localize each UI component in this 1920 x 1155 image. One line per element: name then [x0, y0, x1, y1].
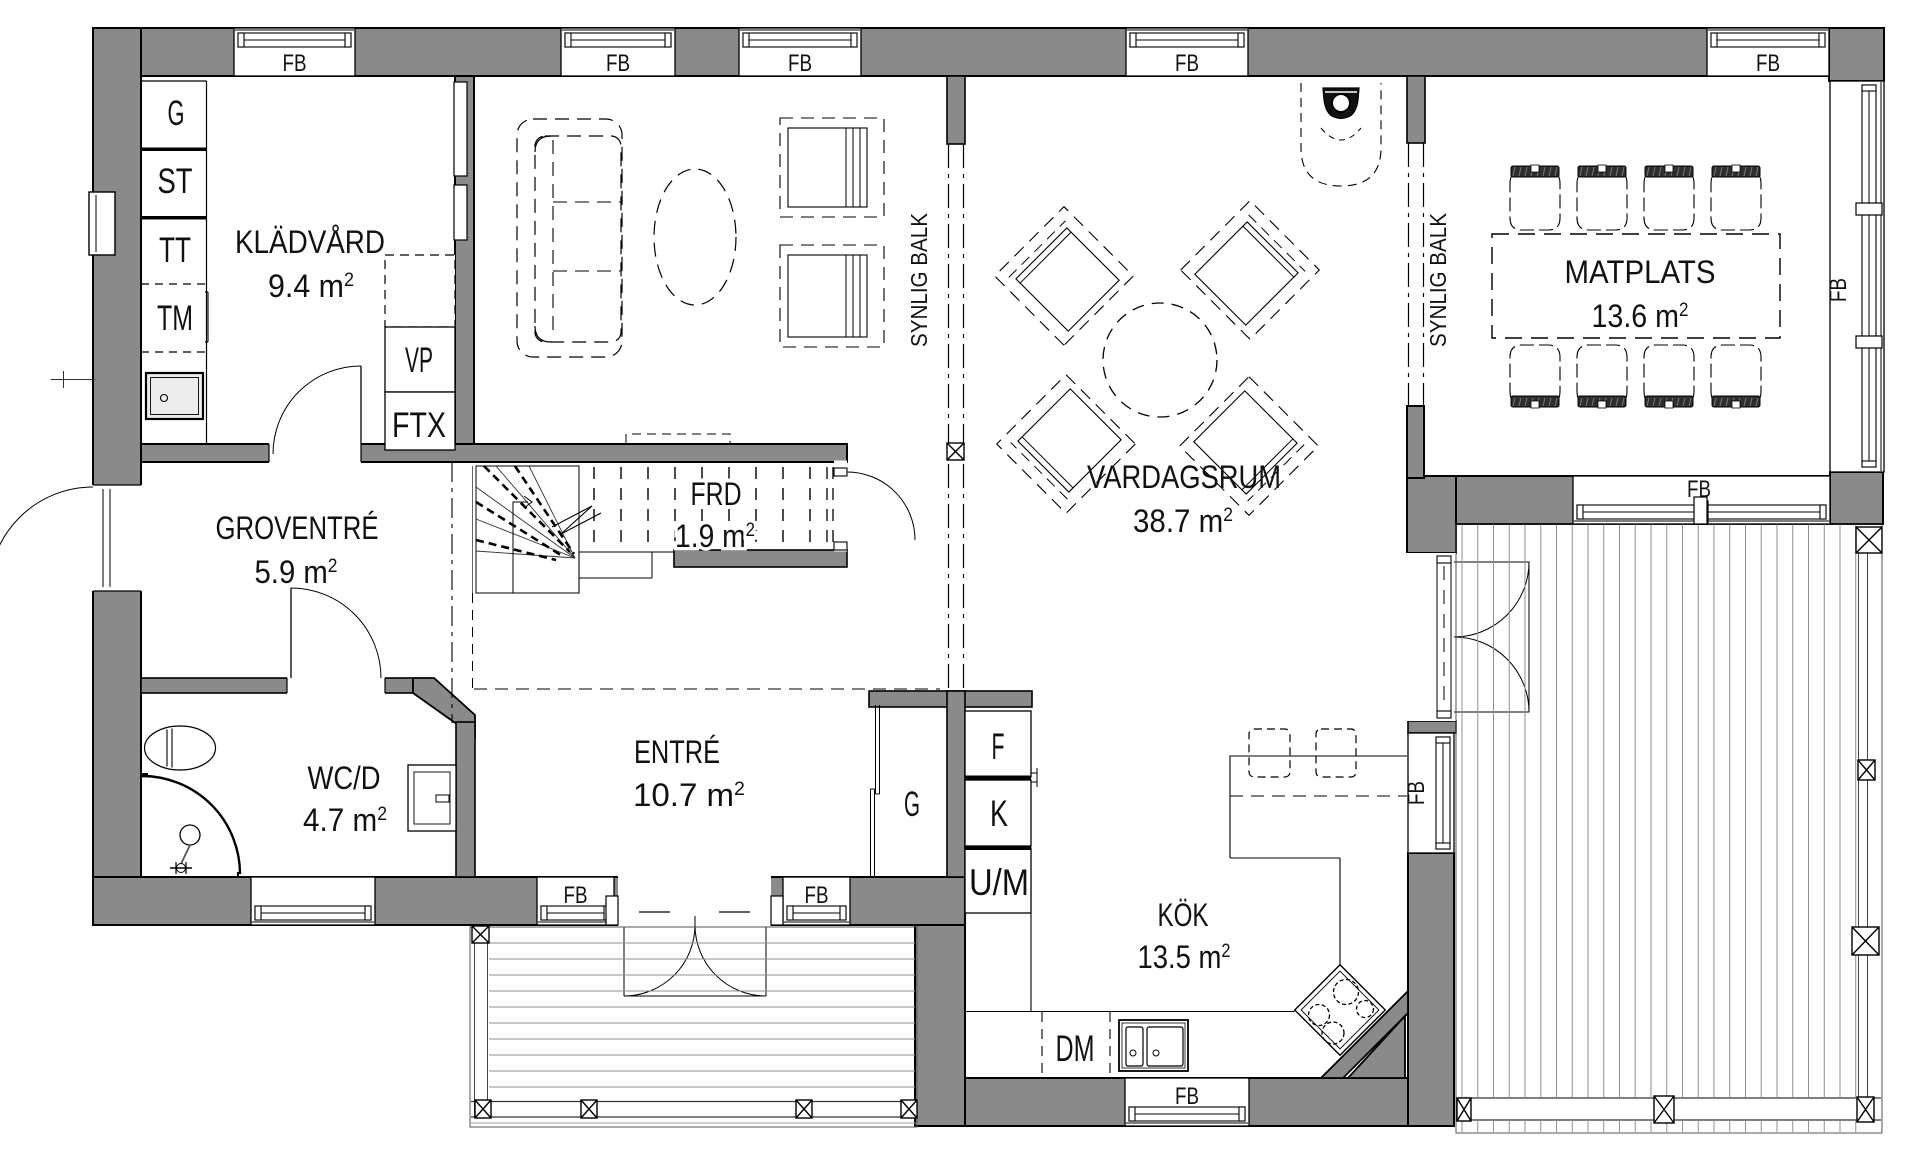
svg-text:FRD: FRD [691, 476, 742, 512]
svg-text:FB: FB [805, 882, 829, 909]
svg-text:U/M: U/M [969, 862, 1029, 903]
svg-text:9.4 m2: 9.4 m2 [268, 268, 354, 304]
svg-text:13.6 m2: 13.6 m2 [1592, 298, 1689, 334]
svg-text:10.7 m2: 10.7 m2 [633, 777, 745, 813]
svg-text:FB: FB [1175, 50, 1199, 77]
svg-text:5.9 m2: 5.9 m2 [255, 554, 338, 590]
svg-text:VP: VP [405, 341, 433, 380]
svg-text:KLÄDVÅRD: KLÄDVÅRD [235, 224, 385, 260]
svg-text:VARDAGSRUM: VARDAGSRUM [1087, 459, 1281, 495]
svg-text:FB: FB [606, 50, 630, 77]
svg-text:FB: FB [788, 50, 812, 77]
svg-text:SYNLIG BALK: SYNLIG BALK [906, 212, 932, 347]
svg-text:G: G [904, 785, 920, 824]
svg-text:38.7 m2: 38.7 m2 [1133, 503, 1233, 539]
svg-text:FB: FB [1175, 1083, 1199, 1110]
svg-text:FB: FB [564, 882, 588, 909]
svg-text:FB: FB [1756, 50, 1780, 77]
svg-text:4.7 m2: 4.7 m2 [303, 802, 387, 838]
svg-text:TT: TT [159, 231, 191, 270]
svg-text:FTX: FTX [392, 406, 446, 445]
svg-text:13.5 m2: 13.5 m2 [1138, 939, 1231, 975]
svg-text:KÖK: KÖK [1158, 897, 1209, 933]
svg-text:SYNLIG BALK: SYNLIG BALK [1425, 212, 1451, 347]
svg-text:FB: FB [283, 50, 307, 77]
svg-text:DM: DM [1056, 1028, 1095, 1069]
svg-text:1.9 m2: 1.9 m2 [675, 518, 755, 554]
svg-text:ENTRÉ: ENTRÉ [634, 734, 720, 770]
svg-text:G: G [168, 94, 185, 133]
svg-text:ST: ST [158, 162, 193, 201]
svg-text:K: K [990, 793, 1008, 834]
svg-text:MATPLATS: MATPLATS [1565, 254, 1716, 290]
svg-text:FB: FB [1403, 781, 1430, 805]
svg-text:GROVENTRÉ: GROVENTRÉ [216, 510, 379, 546]
svg-text:F: F [992, 726, 1005, 767]
svg-text:TM: TM [157, 299, 193, 338]
svg-text:WC/D: WC/D [308, 760, 381, 796]
svg-text:FB: FB [1825, 278, 1852, 302]
